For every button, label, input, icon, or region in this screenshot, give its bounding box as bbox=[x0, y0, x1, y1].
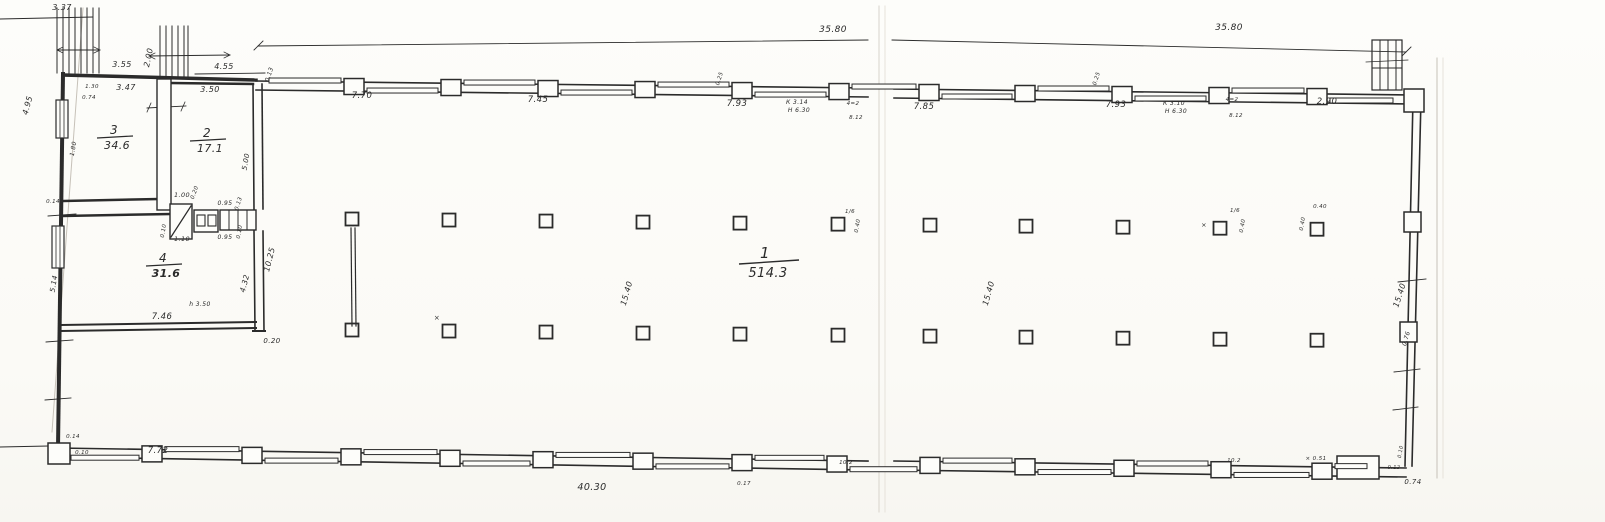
dimension-label: 15.40 bbox=[1391, 282, 1407, 308]
dimension-label: 40.30 bbox=[577, 482, 606, 493]
south-window-strip bbox=[165, 447, 239, 452]
column-top-row bbox=[832, 218, 845, 231]
dimension-label: 7.72 bbox=[148, 446, 169, 456]
dimension-label: 4.32 bbox=[238, 273, 251, 293]
dimension-label: 4=2 bbox=[847, 101, 860, 107]
south-window-strip bbox=[463, 461, 530, 466]
dimension-label: 15.40 bbox=[981, 280, 997, 306]
dimension-label: 7.70 bbox=[352, 91, 373, 101]
column-top-row bbox=[1117, 221, 1130, 234]
dimension-label: 1.00 bbox=[174, 191, 190, 199]
south-window-strip bbox=[1335, 464, 1367, 469]
dimension-label: 7.46 bbox=[152, 312, 173, 322]
south-window-strip bbox=[850, 467, 917, 472]
dimension-label: 3.55 bbox=[112, 60, 131, 69]
dimension-label: 0.95 bbox=[218, 234, 233, 241]
dimension-label: 1/6 bbox=[845, 209, 855, 215]
dimension-label: 7.85 bbox=[914, 102, 935, 112]
wall-block bbox=[157, 79, 171, 210]
wall-block bbox=[1404, 212, 1421, 232]
dimension-label: 10.2 bbox=[839, 460, 853, 466]
north-window-strip bbox=[269, 78, 341, 83]
south-window-strip bbox=[1038, 470, 1111, 475]
wall-line bbox=[195, 73, 265, 74]
dimension-label: 35.80 bbox=[1215, 23, 1243, 33]
wall-line bbox=[61, 322, 256, 325]
south-window-strip bbox=[755, 455, 824, 460]
floor-plan-drawing: 3.373.552.004.550.131.300.743.473.504.95… bbox=[0, 0, 1605, 522]
south-window-strip bbox=[1137, 461, 1208, 466]
wall-block bbox=[48, 443, 70, 464]
south-wall-pier bbox=[242, 447, 262, 463]
north-window-strip bbox=[852, 84, 916, 89]
south-window-strip bbox=[943, 458, 1012, 463]
north-window-strip bbox=[1038, 86, 1109, 91]
south-window-strip bbox=[265, 458, 338, 463]
dimension-label: К 3.10 bbox=[1163, 100, 1185, 107]
room-label-room-2: 217.1 bbox=[190, 126, 226, 155]
window-strips bbox=[71, 78, 1393, 477]
dimension-label: 8.12 bbox=[849, 115, 863, 121]
south-window-strip bbox=[556, 452, 630, 457]
south-wall-pier bbox=[1015, 459, 1035, 475]
room-label-room-1: 1514.3 bbox=[739, 244, 799, 281]
south-wall-pier bbox=[533, 452, 553, 468]
dimension-label: 0.10 bbox=[1397, 445, 1405, 459]
dimension-label: 4.55 bbox=[214, 62, 233, 71]
dimension-label: 0.14 bbox=[66, 434, 80, 440]
column-top-row bbox=[734, 217, 747, 230]
column-top-row bbox=[443, 214, 456, 227]
dimension-label: 0.40 bbox=[1313, 204, 1327, 210]
wall-line bbox=[254, 41, 263, 50]
dimension-label: 0.40 bbox=[854, 218, 862, 233]
south-wall-pier bbox=[440, 450, 460, 466]
north-window-strip bbox=[464, 80, 535, 85]
room-number: 1 bbox=[760, 244, 770, 262]
dimension-label: 2.90 bbox=[1317, 97, 1338, 107]
dimension-label: 5.14 bbox=[49, 274, 60, 292]
south-wall-pier bbox=[1211, 462, 1231, 478]
dimension-label: 7.45 bbox=[528, 95, 549, 105]
dimension-label: 2.00 bbox=[142, 47, 155, 68]
north-window-strip bbox=[1232, 88, 1304, 93]
dimension-label: 0.40 bbox=[1299, 216, 1307, 231]
dimension-label: 7.93 bbox=[1106, 100, 1127, 110]
dimension-label: 0.10 bbox=[75, 450, 89, 456]
dimension-label: 3.50 bbox=[200, 85, 219, 94]
dimension-label: 5.00 bbox=[241, 152, 252, 170]
column-bottom-row bbox=[924, 330, 937, 343]
column-bottom-row bbox=[540, 326, 553, 339]
column-bottom-row bbox=[832, 329, 845, 342]
wall-line bbox=[892, 40, 1406, 52]
column-top-row bbox=[924, 219, 937, 232]
dimension-label: 1/6 bbox=[1230, 208, 1240, 214]
wall-block bbox=[1372, 40, 1402, 90]
north-window-strip bbox=[561, 90, 632, 95]
column-top-row bbox=[346, 213, 359, 226]
wall-line bbox=[64, 199, 158, 201]
wall-block bbox=[194, 210, 218, 232]
room-area: 31.6 bbox=[152, 267, 181, 280]
south-wall-pier bbox=[732, 455, 752, 471]
north-wall-pier bbox=[441, 80, 461, 96]
north-window-strip bbox=[755, 92, 826, 97]
dimension-label: 0.12 bbox=[1388, 465, 1401, 471]
dimension-label: 0.13 bbox=[234, 196, 244, 211]
wall-line bbox=[1405, 99, 1413, 466]
north-wall-pier bbox=[635, 82, 655, 98]
north-wall-pier bbox=[1015, 85, 1035, 101]
dimension-label: Н 6.30 bbox=[1165, 108, 1187, 115]
dimension-label: 0.40 bbox=[1239, 218, 1247, 233]
dimension-label: h 3.50 bbox=[189, 301, 210, 308]
dimension-label: 0.20 bbox=[190, 185, 200, 200]
column-bottom-row bbox=[1311, 334, 1324, 347]
south-window-strip bbox=[1234, 472, 1309, 477]
column-grid bbox=[346, 213, 1324, 347]
dimension-label: Н 6.30 bbox=[788, 107, 810, 114]
dimension-label: 7.93 bbox=[727, 99, 748, 109]
wall-line bbox=[171, 83, 253, 84]
wall-piers bbox=[142, 79, 1332, 480]
column-top-row bbox=[1020, 220, 1033, 233]
dimension-label: 1.80 bbox=[69, 141, 78, 157]
dimension-label: 3.47 bbox=[116, 83, 136, 92]
dimension-label: 0.95 bbox=[218, 200, 233, 207]
dimension-label: 4=2 bbox=[1226, 97, 1239, 103]
wall-line bbox=[254, 231, 255, 331]
column-top-row bbox=[540, 215, 553, 228]
column-top-row bbox=[1214, 222, 1227, 235]
north-window-strip bbox=[942, 94, 1012, 99]
wall-line bbox=[63, 214, 170, 216]
column-bottom-row bbox=[1020, 331, 1033, 344]
dimension-label: 10.25 bbox=[262, 246, 277, 272]
north-window-strip bbox=[1330, 98, 1393, 103]
dimension-label: 0.20 bbox=[263, 337, 280, 345]
wall-line bbox=[0, 446, 48, 447]
dimension-label: 15.40 bbox=[619, 280, 635, 306]
dimension-label: 0.14 bbox=[46, 199, 60, 205]
wall-line bbox=[351, 228, 352, 326]
floor-plan-sheet: 3.373.552.004.550.131.300.743.473.504.95… bbox=[0, 0, 1605, 522]
dimension-label: 3.37 bbox=[52, 3, 72, 12]
column-bottom-row bbox=[734, 328, 747, 341]
dimension-label: 0.74 bbox=[1404, 478, 1421, 486]
room-labels: 334.6217.1431.61514.3 bbox=[97, 123, 799, 281]
north-wall-pier bbox=[829, 84, 849, 100]
column-bottom-row bbox=[1214, 333, 1227, 346]
wall-line bbox=[253, 84, 254, 209]
dimension-label: 1.30 bbox=[85, 84, 99, 90]
wall-line bbox=[0, 17, 93, 19]
south-wall-pier bbox=[633, 453, 653, 469]
dimension-label: × bbox=[434, 314, 440, 322]
column-top-row bbox=[1311, 223, 1324, 236]
column-bottom-row bbox=[443, 325, 456, 338]
south-wall-pier bbox=[920, 457, 940, 473]
north-window-strip bbox=[367, 88, 438, 93]
column-bottom-row bbox=[637, 327, 650, 340]
room-number: 2 bbox=[203, 126, 211, 140]
wall-line bbox=[149, 55, 230, 56]
room-area: 17.1 bbox=[197, 142, 223, 155]
room-number: 3 bbox=[110, 123, 118, 137]
dimension-label: × 0.51 bbox=[1305, 456, 1326, 462]
south-window-strip bbox=[656, 464, 729, 469]
south-wall-pier bbox=[341, 449, 361, 465]
wall-line bbox=[1412, 99, 1421, 466]
dimension-label: 4.95 bbox=[21, 95, 35, 116]
north-wall-pier bbox=[732, 83, 752, 99]
south-wall-pier bbox=[1114, 460, 1134, 476]
dimension-label: 0.10 bbox=[160, 223, 168, 238]
dimension-label: 8.12 bbox=[1229, 113, 1243, 119]
room-number: 4 bbox=[159, 251, 167, 265]
wall-line bbox=[224, 52, 230, 55]
wall-line bbox=[262, 84, 263, 209]
dimension-label: 35.80 bbox=[819, 25, 847, 35]
dimension-label: 10.2 bbox=[1227, 458, 1241, 464]
dimension-label: 1.10 bbox=[174, 235, 190, 243]
wall-line bbox=[258, 40, 868, 46]
room-label-room-3: 334.6 bbox=[97, 123, 133, 152]
dimension-label: 0.17 bbox=[737, 481, 751, 487]
room-area: 514.3 bbox=[748, 266, 787, 281]
dimension-label: 0.74 bbox=[82, 95, 96, 101]
south-window-strip bbox=[364, 450, 437, 455]
wall-line bbox=[263, 231, 264, 331]
dimension-label: 0.25 bbox=[1092, 71, 1102, 86]
north-wall-pier bbox=[919, 84, 939, 100]
dimension-label: К 3.14 bbox=[786, 99, 808, 106]
room-area: 34.6 bbox=[104, 139, 130, 152]
dimension-label: × bbox=[1201, 221, 1207, 229]
wall-block bbox=[52, 226, 64, 268]
column-bottom-row bbox=[1117, 332, 1130, 345]
column-top-row bbox=[637, 216, 650, 229]
wall-line bbox=[61, 328, 256, 331]
dimension-label: 0.10 bbox=[236, 224, 244, 239]
south-wall-pier bbox=[1312, 463, 1332, 479]
wall-line bbox=[1398, 279, 1426, 282]
wall-block bbox=[56, 100, 68, 138]
dimension-labels: 3.373.552.004.550.131.300.743.473.504.95… bbox=[21, 3, 1422, 493]
wall-details bbox=[56, 40, 1408, 267]
wall-line bbox=[355, 228, 356, 326]
room-label-room-4: 431.6 bbox=[146, 251, 182, 280]
wall-block bbox=[1404, 89, 1424, 112]
